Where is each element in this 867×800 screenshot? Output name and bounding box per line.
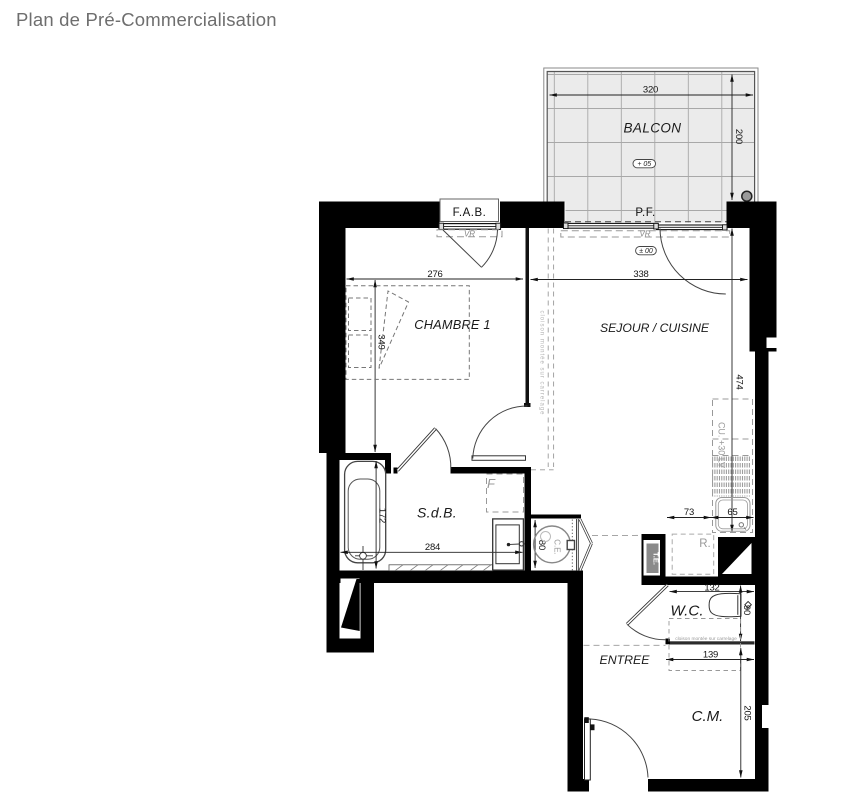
svg-text:349: 349 [376,334,387,349]
svg-text:CHAMBRE 1: CHAMBRE 1 [414,317,490,332]
svg-text:73: 73 [684,507,694,518]
svg-text:R.: R. [699,538,711,550]
svg-text:ENTREE: ENTREE [600,653,651,667]
svg-text:172: 172 [377,508,388,523]
svg-text:CU. +30 LV: CU. +30 LV [717,422,727,468]
svg-text:BALCON: BALCON [624,121,682,136]
svg-text:65: 65 [727,507,737,518]
svg-text:200: 200 [733,129,744,144]
svg-text:P.F.: P.F. [635,207,655,219]
svg-text:320: 320 [643,84,658,95]
svg-text:+ 05: + 05 [637,161,651,168]
svg-text:132: 132 [704,582,719,593]
svg-text:F: F [487,476,496,491]
svg-text:139: 139 [703,649,718,660]
svg-text:cloison montée sur carrelage: cloison montée sur carrelage [675,636,737,642]
svg-text:VR: VR [639,229,650,238]
svg-text:cloison montée sur carrelage: cloison montée sur carrelage [539,310,545,415]
svg-text:VR: VR [464,229,475,238]
svg-text:C.M.: C.M. [692,708,724,725]
svg-text:T.E.: T.E. [652,552,661,565]
svg-text:205: 205 [742,705,753,720]
svg-text:W.C.: W.C. [670,602,703,619]
svg-text:474: 474 [733,374,744,389]
svg-text:Plan de Pré-Commercialisation: Plan de Pré-Commercialisation [16,9,277,30]
svg-text:C.E.: C.E. [553,539,562,555]
svg-text:276: 276 [427,269,442,280]
svg-text:338: 338 [633,269,648,280]
svg-text:S.d.B.: S.d.B. [417,505,457,521]
svg-text:SEJOUR / CUISINE: SEJOUR / CUISINE [600,321,710,335]
svg-text:F.A.B.: F.A.B. [453,207,487,219]
svg-text:± 00: ± 00 [639,248,653,255]
svg-text:284: 284 [425,542,440,553]
